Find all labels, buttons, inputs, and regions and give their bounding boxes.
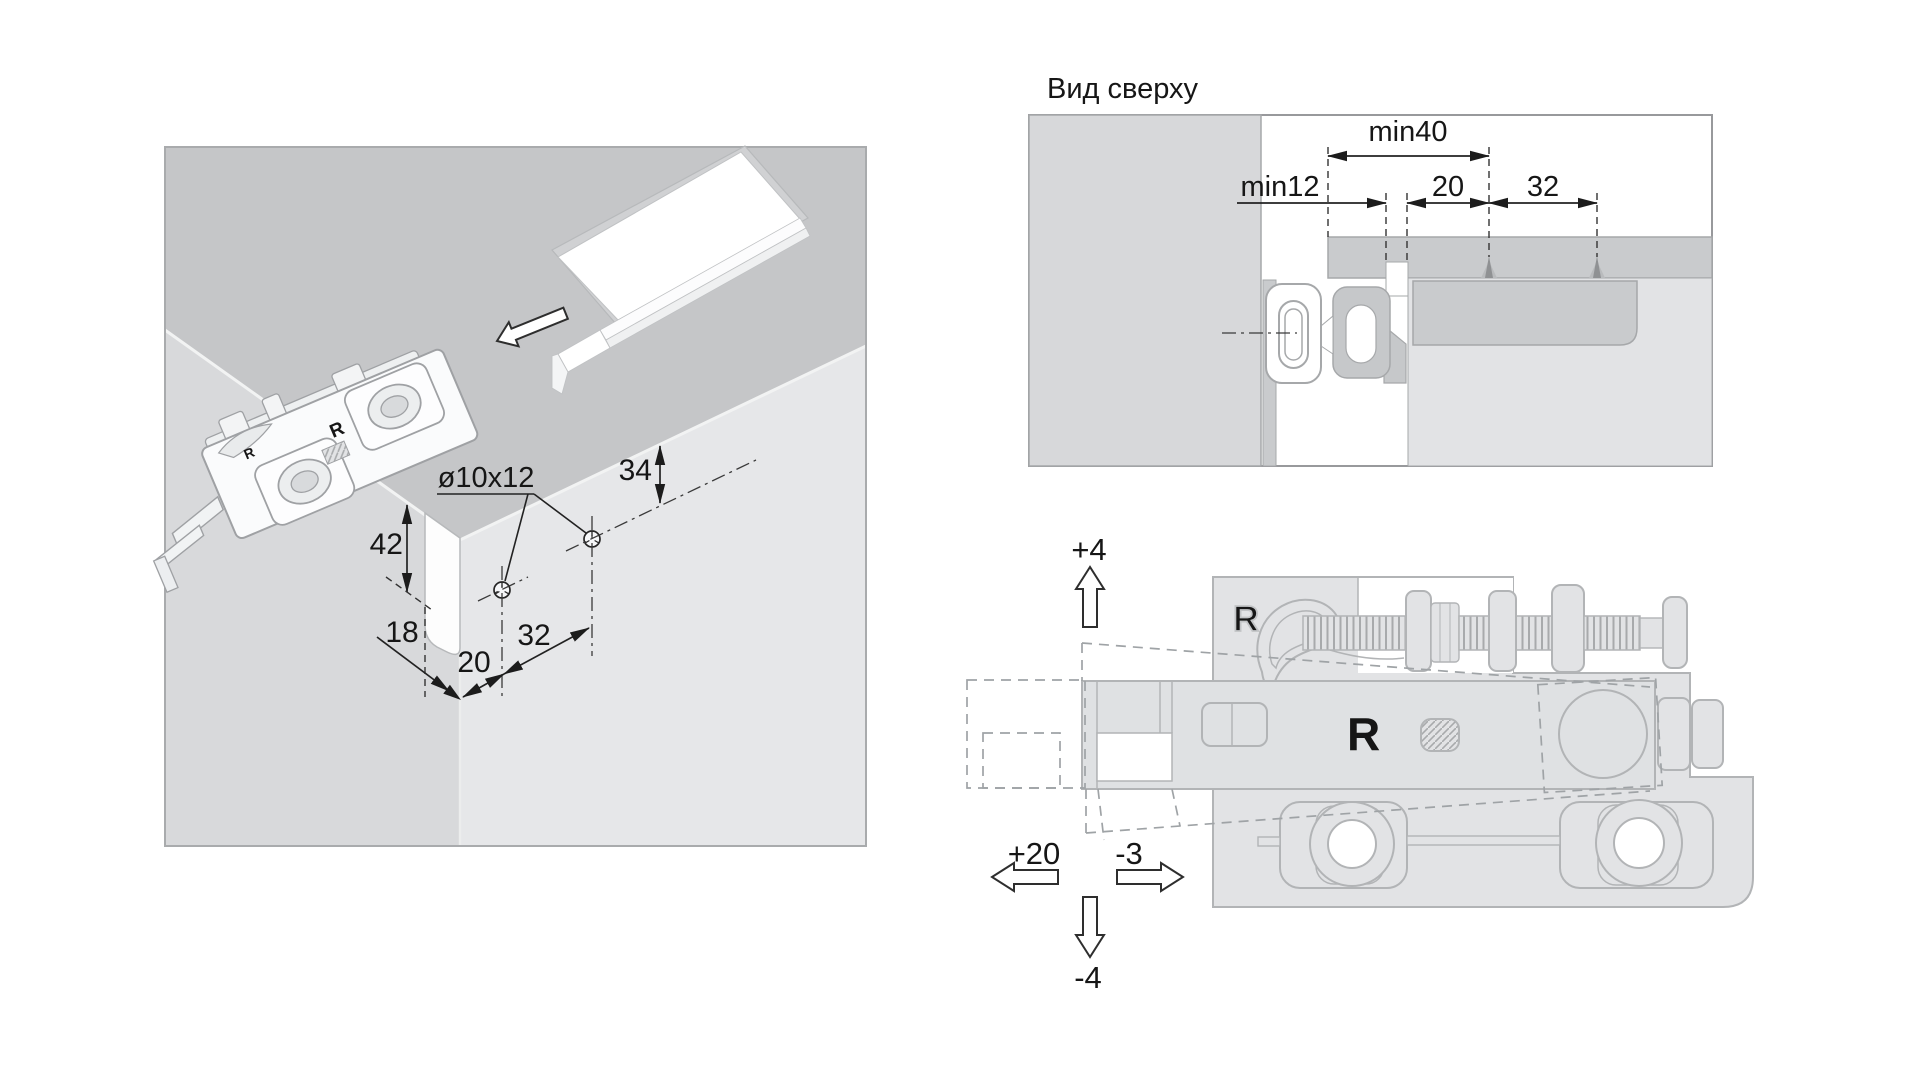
side-view: R bbox=[967, 532, 1753, 995]
dim-min12-label: min12 bbox=[1241, 171, 1320, 203]
iso-dim-18-label: 18 bbox=[385, 616, 418, 649]
iso-dim-34-label: 34 bbox=[619, 454, 652, 487]
arm-tab bbox=[1258, 837, 1280, 846]
adjust-down-label: -4 bbox=[1074, 960, 1102, 995]
clamp-block-1 bbox=[1658, 698, 1690, 770]
adjust-right-label: -3 bbox=[1115, 836, 1143, 871]
iso-dim-20-label: 20 bbox=[457, 646, 490, 679]
clamp-block-2 bbox=[1692, 700, 1723, 768]
top-view: Вид сверху bbox=[1029, 73, 1712, 466]
housing-letter: R bbox=[1233, 598, 1259, 639]
dim-32-top-label: 32 bbox=[1527, 171, 1559, 203]
top-view-title: Вид сверху bbox=[1047, 73, 1199, 105]
iso-view: R R 42 18 bbox=[112, 146, 866, 846]
adjust-up-arrow-icon bbox=[1076, 567, 1104, 627]
diagram-page: R R 42 18 bbox=[0, 0, 1920, 1080]
adjust-left-label: +20 bbox=[1008, 836, 1061, 871]
arm-grip-hatch bbox=[1421, 719, 1459, 751]
technical-diagram-canvas: R R 42 18 bbox=[0, 0, 1920, 1080]
iso-dim-32-label: 32 bbox=[517, 619, 550, 652]
adjust-down-arrow-icon bbox=[1076, 897, 1104, 957]
keyhole-plate-plan bbox=[1266, 284, 1321, 383]
arm-letter: R bbox=[1347, 708, 1380, 760]
hook-notch-plan bbox=[1386, 262, 1408, 296]
hanger-arm: R bbox=[1082, 681, 1655, 789]
arm-fitting bbox=[1202, 703, 1267, 746]
roller-axle bbox=[1407, 836, 1560, 845]
roller-right bbox=[1560, 800, 1713, 888]
dim-20-top-label: 20 bbox=[1432, 171, 1464, 203]
iso-dim-42-label: 42 bbox=[370, 528, 403, 561]
hook-plan bbox=[1333, 287, 1390, 378]
arm-cam bbox=[1559, 690, 1647, 778]
adjust-up-label: +4 bbox=[1071, 532, 1106, 567]
side-panel-plan bbox=[1029, 115, 1261, 466]
roller-left bbox=[1280, 802, 1407, 888]
hanger-housing-plan bbox=[1413, 281, 1637, 345]
dim-min40-label: min40 bbox=[1369, 116, 1448, 148]
hole-size-label: ø10x12 bbox=[438, 462, 535, 494]
arm-hook-cavity bbox=[1097, 733, 1172, 781]
corner-notch bbox=[425, 513, 460, 654]
